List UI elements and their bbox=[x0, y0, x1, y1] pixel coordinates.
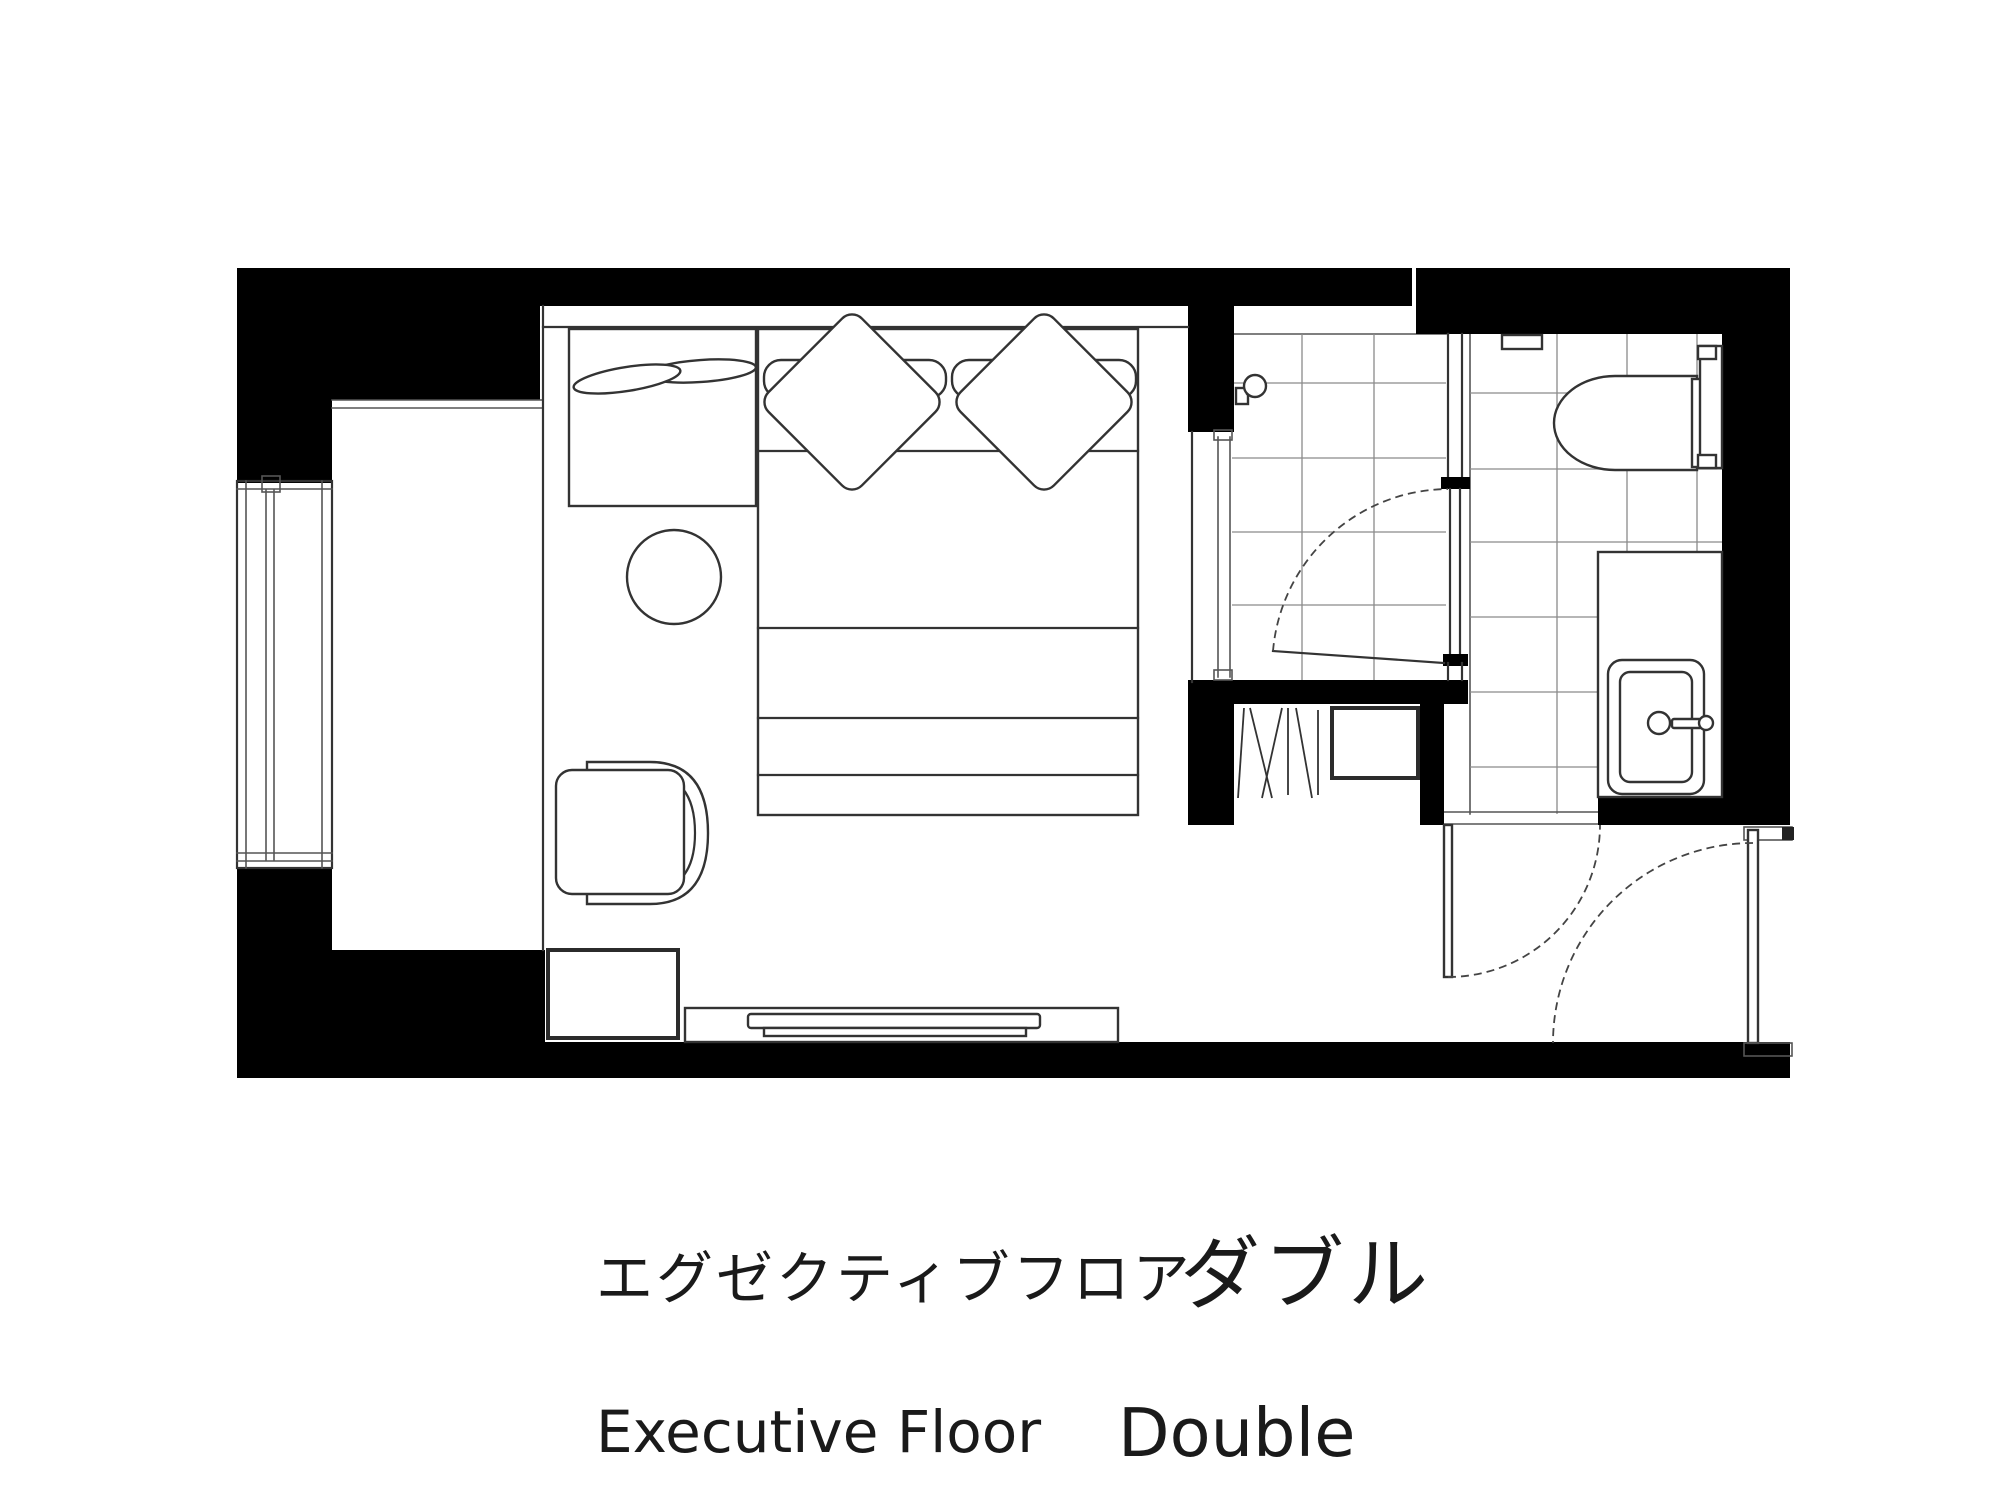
entrance-threshold-stop bbox=[1782, 827, 1794, 840]
wall-closet-right bbox=[1420, 704, 1444, 825]
round-table bbox=[627, 530, 721, 624]
wall-top-bedroom bbox=[237, 268, 1412, 306]
balcony-window bbox=[237, 476, 332, 868]
wall-divider-block bbox=[1188, 268, 1234, 432]
faucet-knob bbox=[1648, 712, 1670, 734]
nightstand bbox=[569, 329, 757, 506]
bathroom-door bbox=[1444, 825, 1600, 977]
caption-english: Executive Floor bbox=[596, 1398, 1041, 1466]
floor-plan-page: エグゼクティブフロア ダブル Executive Floor Double bbox=[0, 0, 2000, 1500]
wall-right bbox=[1722, 268, 1790, 825]
closet-hangers bbox=[1238, 708, 1318, 798]
faucet-spout bbox=[1672, 719, 1702, 728]
wall-bottom-left-corner bbox=[237, 868, 545, 1078]
paper-holder-niche bbox=[1502, 335, 1542, 349]
caption-japanese-type: ダブル bbox=[1180, 1228, 1432, 1321]
floor-plan-drawing: エグゼクティブフロア ダブル Executive Floor Double bbox=[0, 0, 2000, 1500]
shower-head-icon bbox=[1236, 375, 1266, 404]
double-bed bbox=[758, 309, 1138, 815]
tv-tray bbox=[748, 1014, 1040, 1028]
caption-english-type: Double bbox=[1118, 1394, 1355, 1472]
caption-japanese: エグゼクティブフロア bbox=[596, 1246, 1193, 1312]
entrance-door-leaf bbox=[1748, 830, 1758, 1043]
balcony bbox=[332, 306, 543, 950]
vanity-counter bbox=[1598, 552, 1722, 797]
luggage-bench bbox=[548, 950, 678, 1038]
shower-door-leaf bbox=[1273, 651, 1444, 663]
toilet-bowl bbox=[1554, 376, 1697, 470]
glass-partition bbox=[1192, 430, 1232, 682]
armchair bbox=[556, 762, 708, 904]
bathroom-door-leaf bbox=[1444, 825, 1452, 977]
wall-under-counter bbox=[1598, 797, 1722, 825]
entrance-door-swing-arc bbox=[1553, 843, 1753, 1043]
tv-board bbox=[685, 1008, 1118, 1042]
safe-box bbox=[1332, 708, 1418, 778]
wall-closet-left bbox=[1188, 704, 1234, 825]
entrance-door bbox=[1553, 827, 1794, 1056]
wall-under-shower bbox=[1188, 680, 1468, 704]
toilet-cistern bbox=[1700, 346, 1722, 468]
bathroom-door-swing-arc bbox=[1448, 825, 1600, 977]
shower-door-swing-arc bbox=[1273, 489, 1448, 651]
